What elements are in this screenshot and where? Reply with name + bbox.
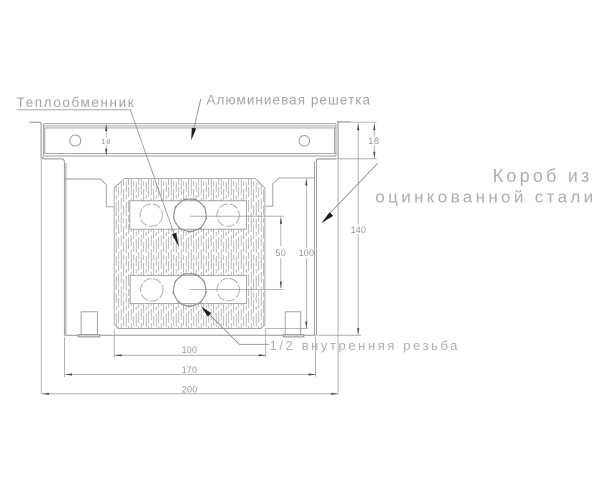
svg-text:Короб из: Короб из	[493, 166, 593, 186]
svg-text:18: 18	[368, 136, 379, 146]
svg-text:Теплообменник: Теплообменник	[17, 95, 136, 110]
svg-text:оцинкованной стали: оцинкованной стали	[375, 188, 596, 207]
svg-text:Алюминиевая решетка: Алюминиевая решетка	[207, 92, 372, 107]
svg-text:200: 200	[182, 385, 198, 395]
svg-text:140: 140	[351, 225, 367, 235]
svg-text:170: 170	[182, 365, 198, 375]
svg-text:50: 50	[275, 248, 285, 258]
svg-text:18: 18	[101, 137, 111, 146]
svg-text:1/2 внутренняя резьба: 1/2 внутренняя резьба	[270, 338, 461, 353]
svg-text:100: 100	[299, 248, 315, 258]
svg-text:100: 100	[182, 345, 198, 355]
